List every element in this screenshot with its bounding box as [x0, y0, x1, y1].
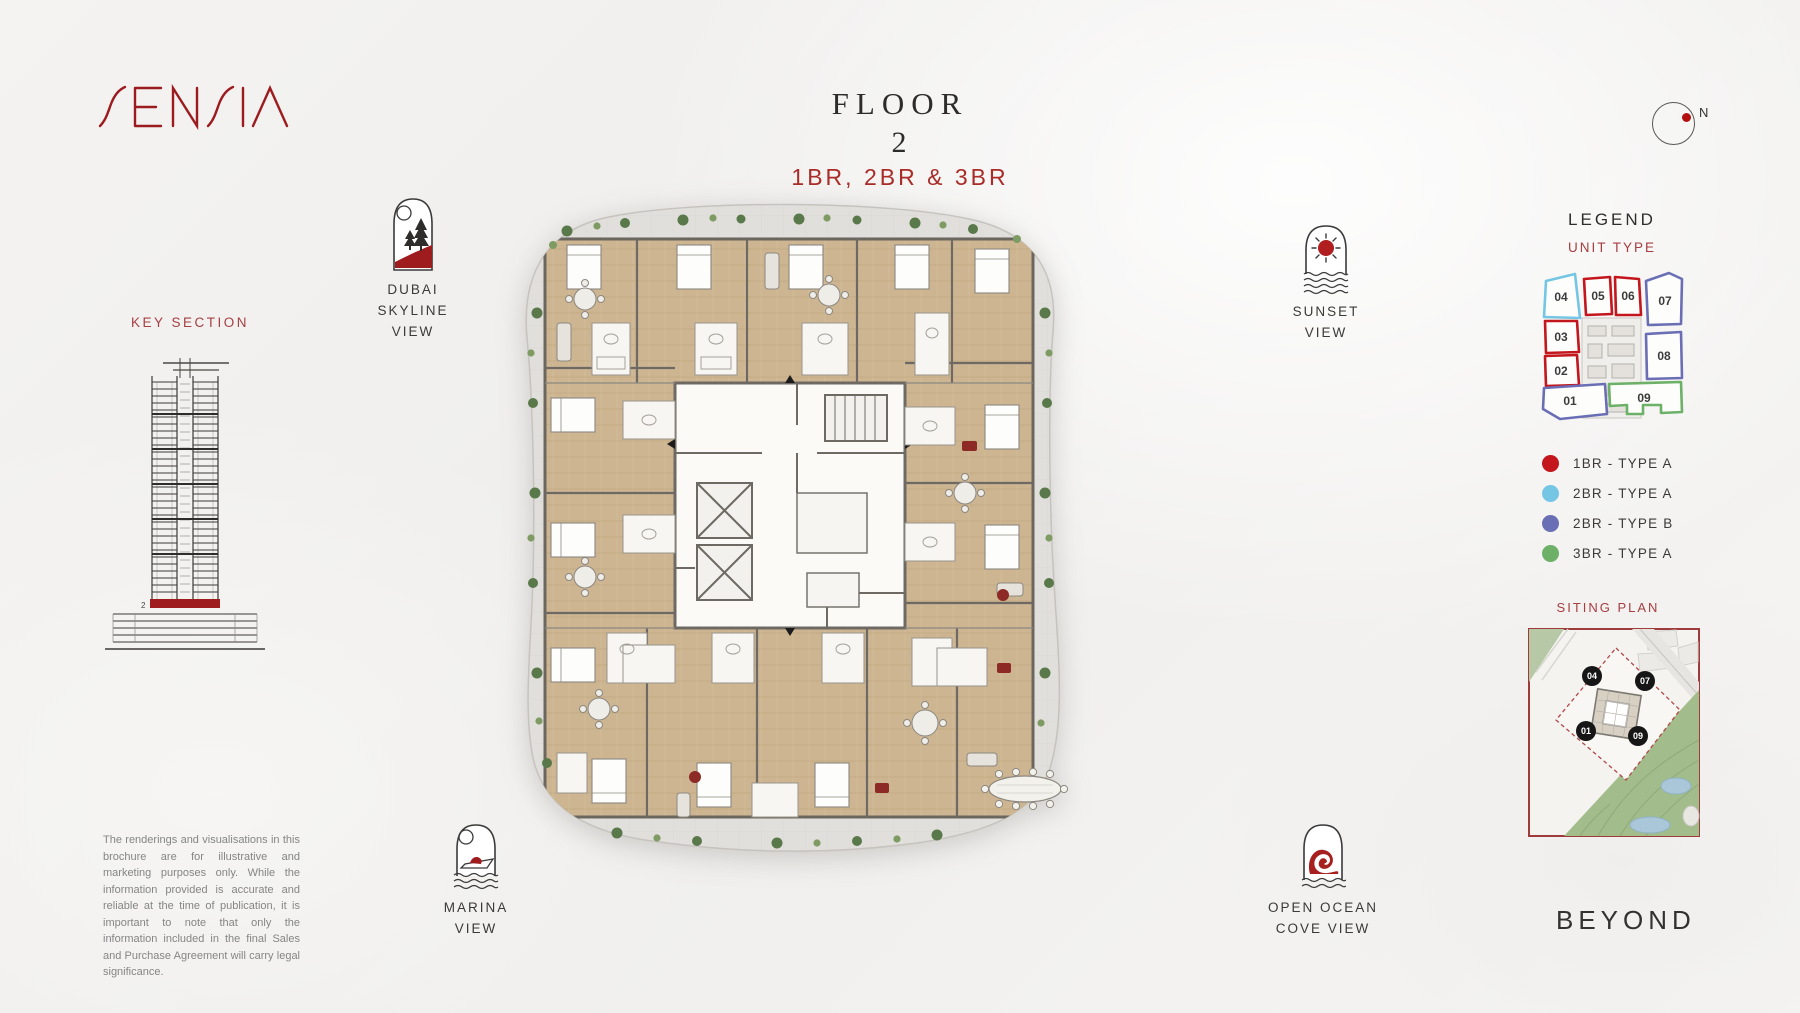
- unit-number: 07: [1658, 294, 1672, 308]
- siting-marker: 01: [1581, 726, 1591, 736]
- view-label-marina: MARINA VIEW: [444, 898, 509, 940]
- unit-number: 09: [1637, 391, 1651, 405]
- bed: [551, 523, 595, 557]
- sun-waves-icon: [1302, 222, 1350, 298]
- sensia-logo: [95, 84, 295, 130]
- compass-icon: [1652, 102, 1695, 145]
- bed: [815, 763, 849, 807]
- disclaimer-text: The renderings and visualisations in thi…: [103, 832, 300, 981]
- legend-entry: 2BR - TYPE B: [1542, 508, 1673, 538]
- legend-entry: 1BR - TYPE A: [1542, 448, 1673, 478]
- view-label-sunset: SUNSET VIEW: [1293, 302, 1360, 344]
- bed: [551, 398, 595, 432]
- siting-plan-title: SITING PLAN: [1557, 600, 1660, 615]
- tower-floor-marker: 2: [141, 601, 146, 610]
- bed: [697, 763, 731, 807]
- legend-swatch-2br-b: [1542, 515, 1559, 532]
- floor-plan: [497, 193, 1082, 857]
- unit-number: 02: [1554, 364, 1568, 378]
- legend-swatch-1br-a: [1542, 455, 1559, 472]
- siting-plan-map: 04 07 01 09: [1528, 628, 1700, 837]
- unit-number: 08: [1657, 349, 1671, 363]
- floor-number: 2: [892, 126, 909, 160]
- unit-number: 04: [1554, 290, 1568, 304]
- legend-entry: 2BR - TYPE A: [1542, 478, 1673, 508]
- floor-subtitle: 1BR, 2BR & 3BR: [791, 164, 1008, 191]
- developer-logo: BEYOND: [1556, 905, 1696, 936]
- compass-north-dot: [1682, 113, 1691, 122]
- unit-number: 05: [1591, 289, 1605, 303]
- bed: [592, 759, 626, 803]
- bed: [985, 525, 1019, 569]
- compass-north-label: N: [1699, 105, 1708, 120]
- bed: [551, 648, 595, 682]
- legend-entries: 1BR - TYPE A 2BR - TYPE A 2BR - TYPE B 3…: [1542, 448, 1673, 568]
- unit-number: 03: [1554, 330, 1568, 344]
- skyline-trees-icon: [391, 196, 435, 272]
- legend-swatch-3br-a: [1542, 545, 1559, 562]
- siting-marker: 04: [1587, 671, 1597, 681]
- siting-marker: 07: [1640, 676, 1650, 686]
- legend-entry: 3BR - TYPE A: [1542, 538, 1673, 568]
- brochure-page: FLOOR 2 1BR, 2BR & 3BR N KEY SECTION: [0, 0, 1800, 1013]
- view-label-open-ocean: OPEN OCEAN COVE VIEW: [1268, 898, 1378, 940]
- wave-icon: [1300, 822, 1346, 894]
- legend-title: LEGEND: [1568, 210, 1656, 230]
- unit-number: 01: [1563, 394, 1577, 408]
- bed: [895, 245, 929, 289]
- unit-type-key-diagram: 04 05 06 07 03 02 08 01 09: [1538, 268, 1686, 422]
- bed: [985, 405, 1019, 449]
- unit-number: 06: [1621, 289, 1635, 303]
- bed: [677, 245, 711, 289]
- highlight-floor-band: [150, 599, 220, 608]
- key-section-title: KEY SECTION: [131, 315, 249, 330]
- legend-swatch-2br-a: [1542, 485, 1559, 502]
- key-section-tower: 2: [105, 356, 265, 668]
- siting-marker: 09: [1633, 731, 1643, 741]
- bed: [975, 249, 1009, 293]
- boat-waves-icon: [453, 822, 499, 894]
- page-title: FLOOR: [832, 86, 969, 122]
- legend-subtitle: UNIT TYPE: [1568, 240, 1656, 255]
- bed: [789, 245, 823, 289]
- view-label-dubai-skyline: DUBAI SKYLINE VIEW: [377, 280, 448, 343]
